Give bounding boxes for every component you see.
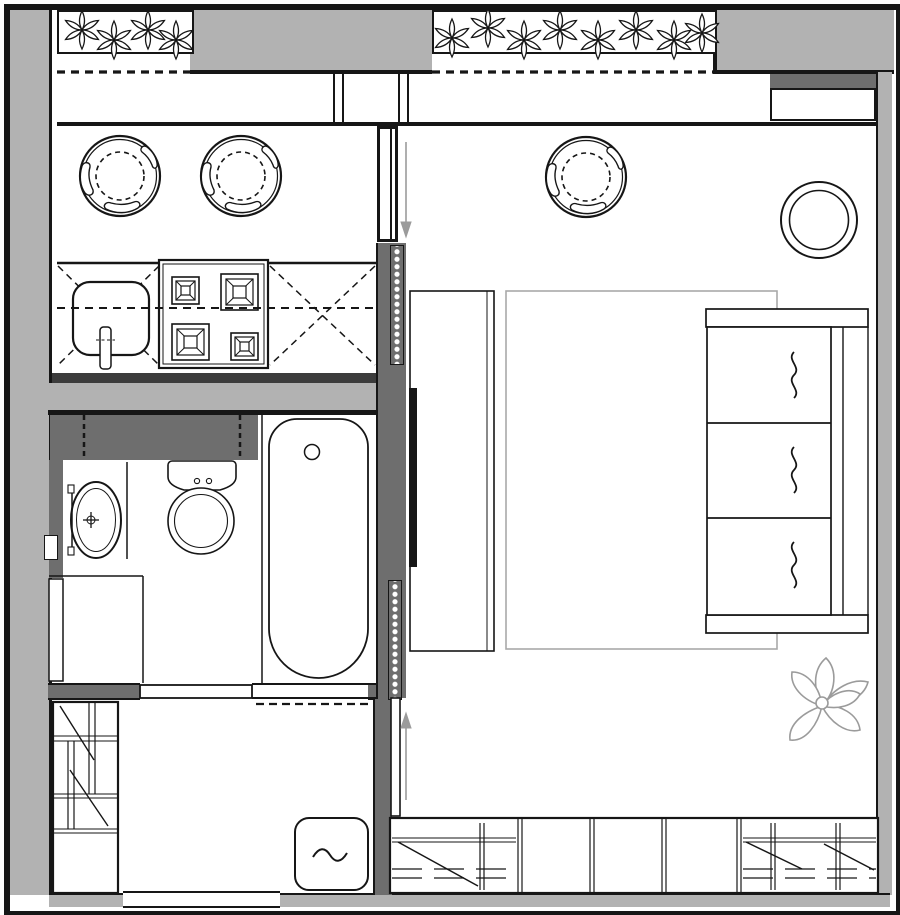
plan-outer-frame bbox=[4, 4, 900, 915]
floor-plan bbox=[0, 0, 900, 915]
